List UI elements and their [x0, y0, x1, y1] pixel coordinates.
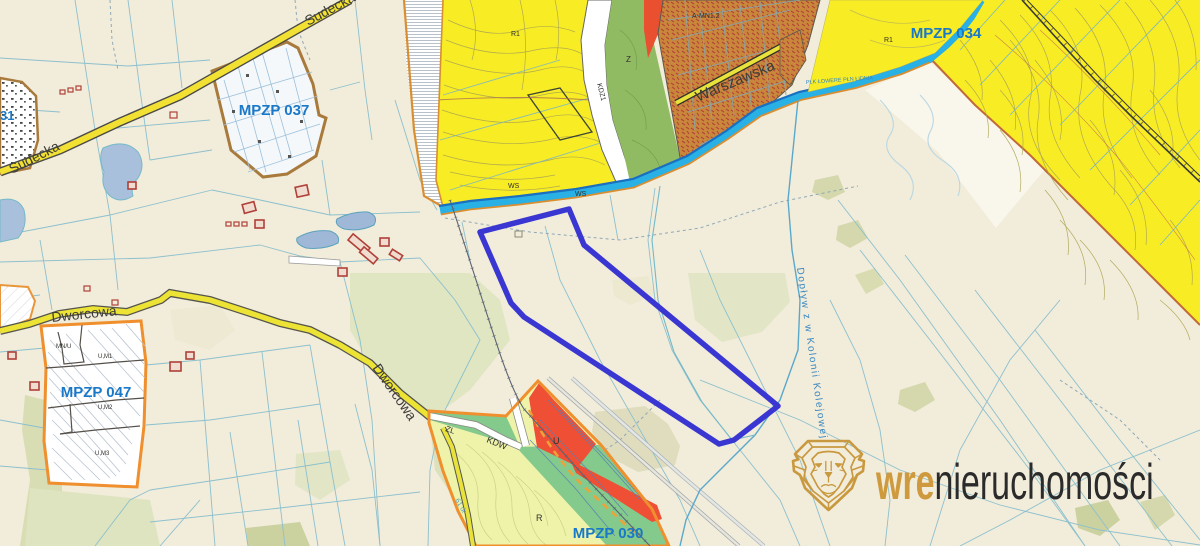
svg-text:MPZP 047: MPZP 047 [61, 384, 132, 401]
svg-text:wre: wre [875, 455, 934, 511]
svg-text:31: 31 [0, 108, 14, 123]
svg-text:A-MN1.2: A-MN1.2 [692, 13, 720, 20]
svg-text:WS: WS [508, 183, 520, 190]
svg-text:Z: Z [626, 55, 631, 64]
svg-text:U,M2: U,M2 [98, 405, 113, 411]
svg-text:U: U [553, 436, 560, 446]
svg-text:R1: R1 [884, 37, 893, 44]
svg-text:R: R [536, 513, 543, 523]
svg-text:MPZP 034: MPZP 034 [911, 25, 982, 42]
svg-text:WS: WS [575, 191, 587, 198]
svg-text:MPZP 037: MPZP 037 [239, 102, 310, 119]
svg-text:MPZP 030: MPZP 030 [573, 525, 644, 542]
svg-text:MN/U: MN/U [56, 344, 71, 350]
svg-text:R1: R1 [511, 31, 520, 38]
svg-text:U,M1: U,M1 [98, 354, 113, 360]
svg-text:nieruchomości: nieruchomości [934, 455, 1153, 511]
svg-text:U,M3: U,M3 [95, 451, 110, 457]
